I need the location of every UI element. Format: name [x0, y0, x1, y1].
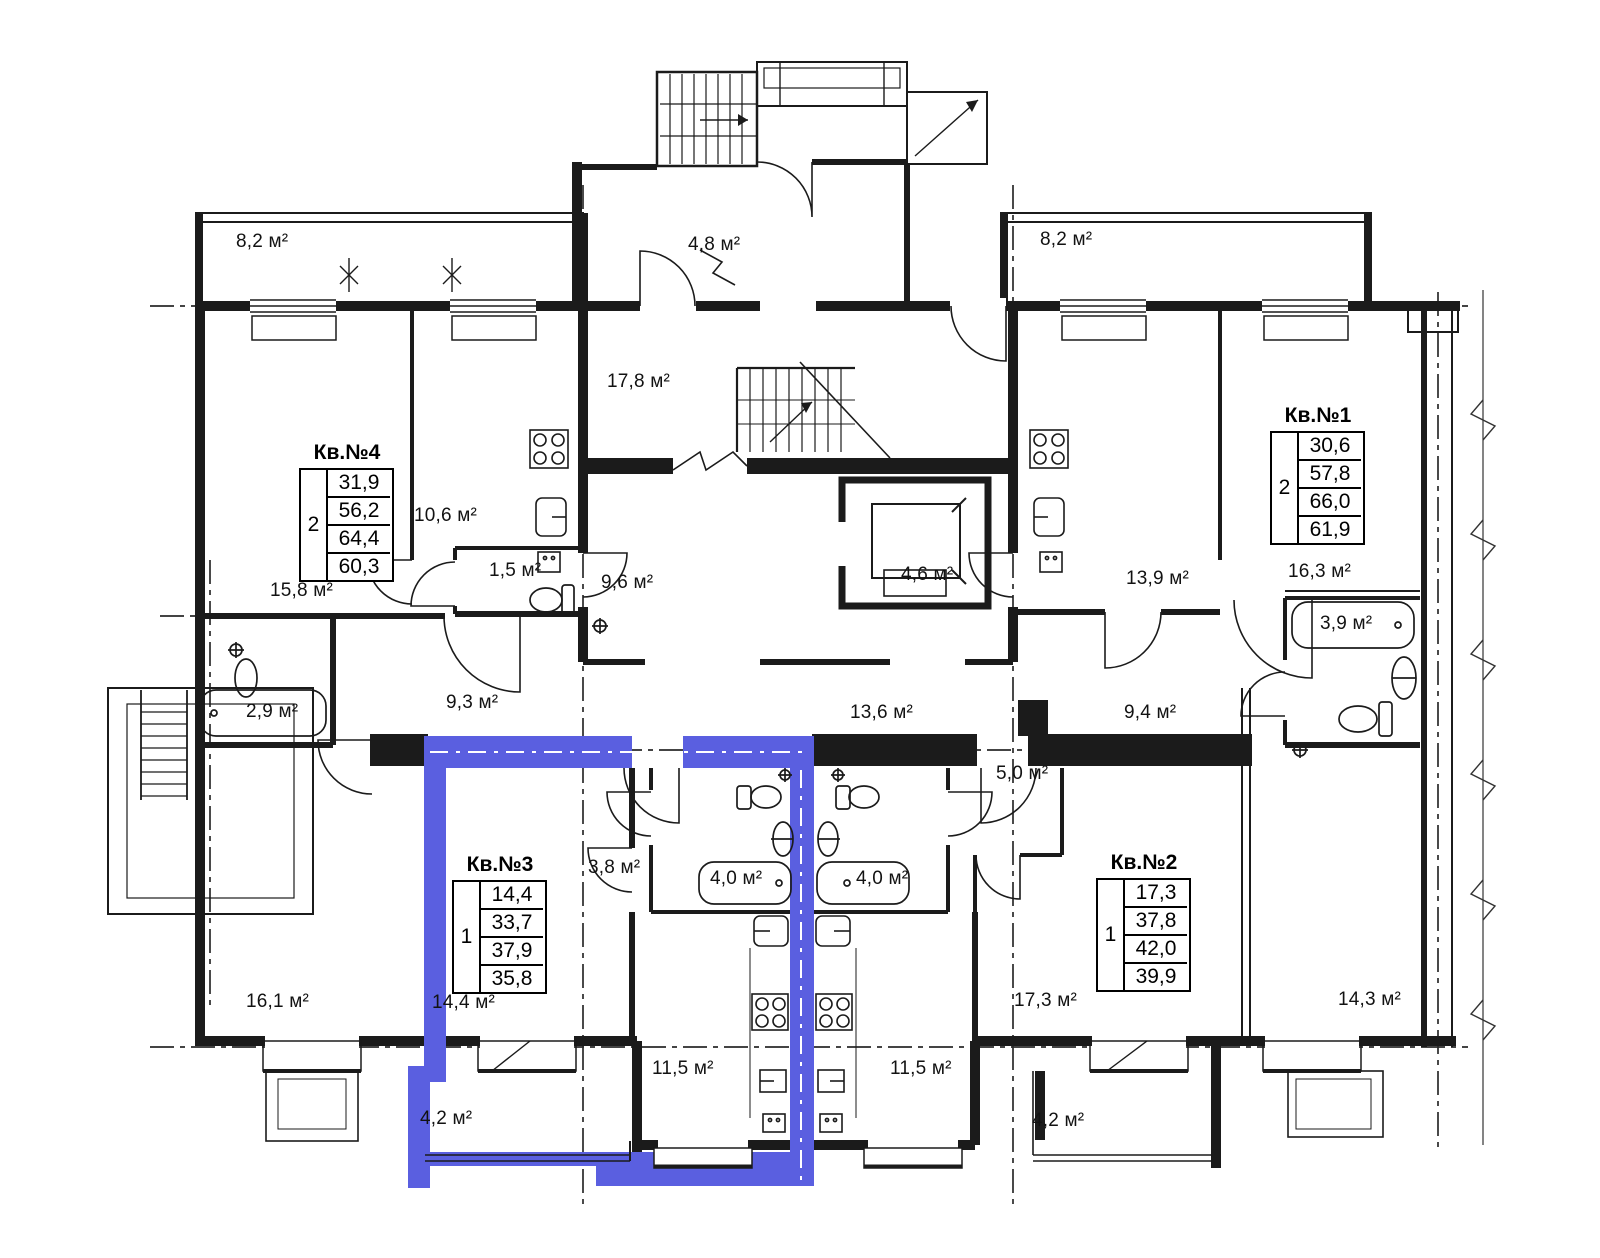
- room-count: 2: [301, 470, 328, 580]
- room-area-label: 9,6 м²: [601, 572, 653, 594]
- apartment-title: Кв.№1: [1270, 404, 1366, 428]
- room-area-label: 13,9 м²: [1126, 568, 1189, 590]
- room-area-label: 4,8 м²: [688, 234, 740, 256]
- room-area-label: 2,9 м²: [246, 701, 298, 723]
- room-area-label: 3,8 м²: [588, 857, 640, 879]
- elevator-shaft: [837, 480, 988, 606]
- floor-plan-page: 8,2 м² 4,8 м² 8,2 м² 17,8 м² 10,6 м² 1,5…: [0, 0, 1600, 1258]
- area-value: 60,3: [328, 554, 390, 580]
- apartment-title: Кв.№4: [299, 441, 395, 465]
- room-area-label: 17,8 м²: [607, 371, 670, 393]
- apartment-area-table: 1 17,3 37,8 42,0 39,9: [1096, 878, 1191, 992]
- area-value: 61,9: [1299, 517, 1361, 543]
- room-area-label: 14,4 м²: [432, 992, 495, 1014]
- area-value: 35,8: [481, 966, 543, 992]
- room-area-label: 10,6 м²: [414, 505, 477, 527]
- apartment-card-kv2[interactable]: Кв.№2 1 17,3 37,8 42,0 39,9: [1096, 851, 1192, 992]
- apartment-title: Кв.№3: [452, 853, 548, 877]
- entrance-porch: [657, 62, 987, 306]
- central-staircase: [737, 362, 890, 458]
- room-area-label: 14,3 м²: [1338, 989, 1401, 1011]
- room-area-label: 16,3 м²: [1288, 561, 1351, 583]
- area-value: 66,0: [1299, 489, 1361, 517]
- apartment-area-table: 1 14,4 33,7 37,9 35,8: [452, 880, 547, 994]
- area-value: 64,4: [328, 526, 390, 554]
- room-area-label: 3,9 м²: [1320, 613, 1372, 635]
- room-area-label: 8,2 м²: [236, 231, 288, 253]
- area-value: 30,6: [1299, 433, 1361, 461]
- top-balconies: [195, 213, 1372, 306]
- area-value: 14,4: [481, 882, 543, 910]
- apartment-card-kv1[interactable]: Кв.№1 2 30,6 57,8 66,0 61,9: [1270, 404, 1366, 545]
- doors: [318, 162, 1312, 899]
- room-area-label: 16,1 м²: [246, 991, 309, 1013]
- room-area-label: 4,2 м²: [420, 1108, 472, 1130]
- apartment-area-table: 2 30,6 57,8 66,0 61,9: [1270, 431, 1365, 545]
- apartment-card-kv4[interactable]: Кв.№4 2 31,9 56,2 64,4 60,3: [299, 441, 395, 582]
- room-area-label: 4,6 м²: [901, 564, 953, 586]
- room-area-label: 17,3 м²: [1014, 990, 1077, 1012]
- room-area-label: 4,0 м²: [710, 868, 762, 890]
- room-count: 2: [1272, 433, 1299, 543]
- area-value: 42,0: [1125, 936, 1187, 964]
- room-area-label: 11,5 м²: [652, 1058, 714, 1080]
- area-value: 39,9: [1125, 964, 1187, 990]
- room-area-label: 13,6 м²: [850, 702, 913, 724]
- room-area-label: 9,4 м²: [1124, 702, 1176, 724]
- area-value: 31,9: [328, 470, 390, 498]
- room-area-label: 1,5 м²: [489, 560, 541, 582]
- area-value: 37,8: [1125, 908, 1187, 936]
- area-value: 56,2: [328, 498, 390, 526]
- room-area-label: 11,5 м²: [890, 1058, 952, 1080]
- room-area-label: 4,0 м²: [856, 868, 908, 890]
- area-value: 37,9: [481, 938, 543, 966]
- area-value: 33,7: [481, 910, 543, 938]
- room-area-label: 4,2 м²: [1032, 1110, 1084, 1132]
- room-area-label: 5,0 м²: [996, 763, 1048, 785]
- room-area-label: 15,8 м²: [270, 580, 333, 602]
- apartment-area-table: 2 31,9 56,2 64,4 60,3: [299, 468, 394, 582]
- room-count: 1: [1098, 880, 1125, 990]
- section-break-line: [1471, 290, 1495, 1145]
- room-count: 1: [454, 882, 481, 992]
- apartment-title: Кв.№2: [1096, 851, 1192, 875]
- room-area-label: 8,2 м²: [1040, 229, 1092, 251]
- area-value: 57,8: [1299, 461, 1361, 489]
- apartment-card-kv3[interactable]: Кв.№3 1 14,4 33,7 37,9 35,8: [452, 853, 548, 994]
- room-area-label: 9,3 м²: [446, 692, 498, 714]
- area-value: 17,3: [1125, 880, 1187, 908]
